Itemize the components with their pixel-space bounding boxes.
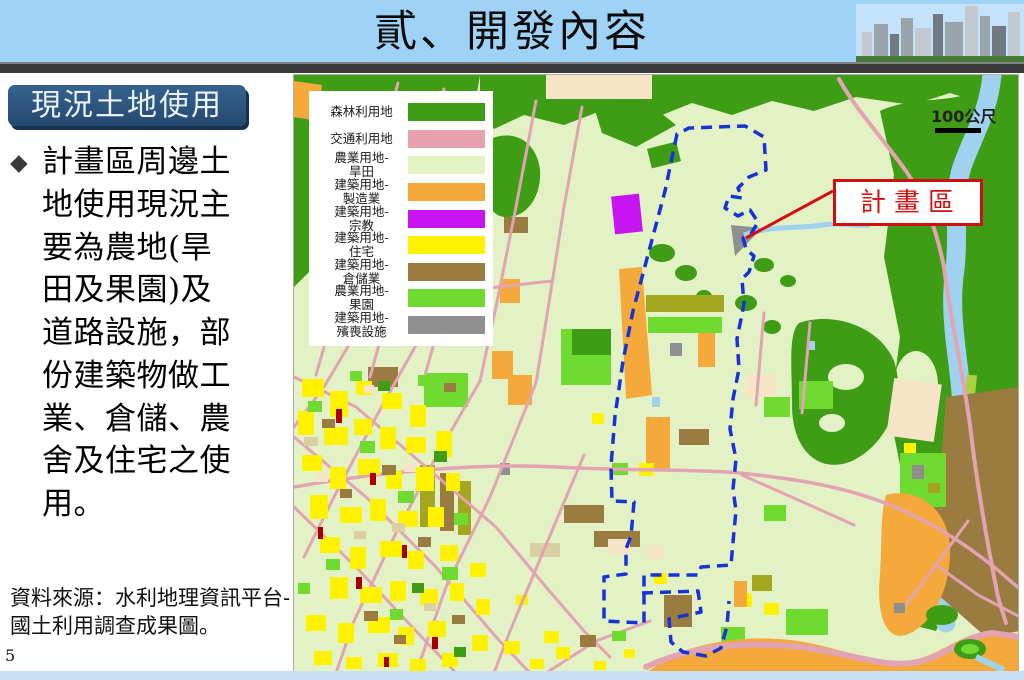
legend-swatch — [408, 103, 485, 121]
legend-swatch — [408, 316, 485, 334]
legend-item: 交通利用地 — [315, 126, 485, 153]
map-legend: 森林利用地 交通利用地 農業用地-旱田 建築用地-製造業 建築用地-宗教 建築用… — [309, 91, 493, 346]
slide-frame-bottom — [0, 671, 1024, 680]
legend-item: 建築用地-倉儲業 — [315, 259, 485, 286]
legend-item: 建築用地-宗教 — [315, 205, 485, 232]
legend-swatch — [408, 183, 485, 201]
body-paragraph: 計畫區周邊土地使用現況主要為農地(旱田及果園)及道路設施，部份建築物做工業、倉儲… — [42, 141, 238, 526]
city-skyline-image — [856, 4, 1024, 62]
source-citation: 資料來源：水利地理資訊平台-國土利用調查成果圖。 — [10, 585, 292, 640]
legend-swatch — [408, 263, 485, 281]
legend-item: 森林利用地 — [315, 99, 485, 126]
legend-item: 農業用地-果園 — [315, 285, 485, 312]
legend-item: 農業用地-旱田 — [315, 152, 485, 179]
plan-area-callout: 計畫區 — [833, 179, 983, 226]
legend-swatch — [408, 236, 485, 254]
section-heading-badge: 現況土地使用 — [8, 85, 246, 126]
presentation-slide: 貳、開發內容 現況土地使用 ◆ 計畫區周邊土地使用現況主要為農地(旱田及果園)及… — [0, 0, 1024, 680]
legend-swatch — [408, 130, 485, 148]
scale-bar-line — [935, 128, 981, 133]
legend-swatch — [408, 289, 485, 307]
bullet-diamond-icon: ◆ — [10, 150, 28, 176]
title-bar: 貳、開發內容 — [0, 0, 1024, 62]
legend-item: 建築用地-製造業 — [315, 179, 485, 206]
legend-item: 建築用地-住宅 — [315, 232, 485, 259]
page-number: 5 — [5, 646, 15, 665]
scale-label: 100公尺 — [931, 103, 996, 127]
land-use-map: 森林利用地 交通利用地 農業用地-旱田 建築用地-製造業 建築用地-宗教 建築用… — [293, 74, 1019, 672]
scale-bar: 100公尺 — [931, 103, 996, 133]
legend-swatch — [408, 156, 485, 174]
title-divider-bar — [0, 62, 1024, 73]
legend-item: 建築用地-殯喪設施 — [315, 312, 485, 339]
legend-swatch — [408, 210, 485, 228]
